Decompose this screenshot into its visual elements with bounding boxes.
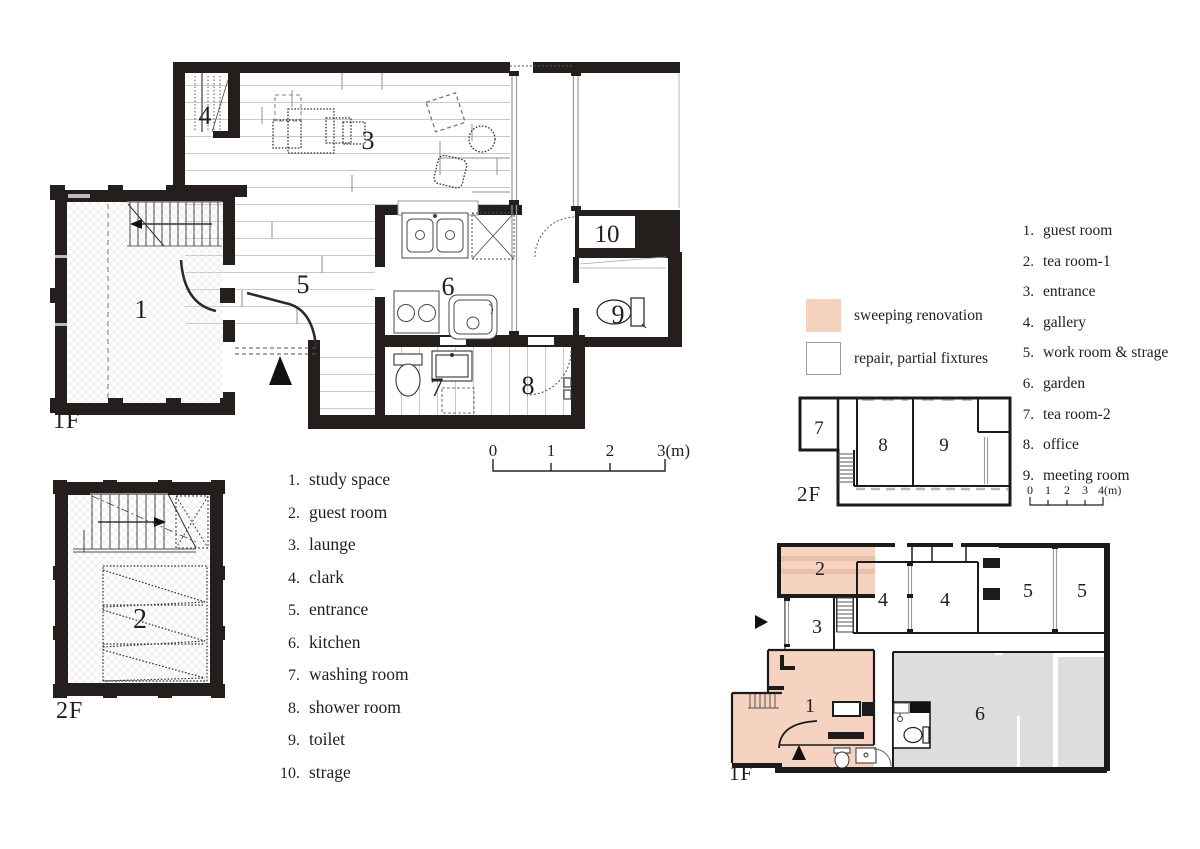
left-room-legend: 1.study space 2.guest room 3.launge 4.cl… [272,469,409,794]
legend-item: 7.washing room [272,664,409,685]
room-label-guestroom-r: 1 [805,695,815,717]
room-label-launge: 3 [362,126,375,155]
room-label-meeting: 9 [939,435,949,456]
floor-plan-left-2f: 2 [48,478,238,713]
legend-item: 5.entrance [272,599,409,620]
room-label-kitchen: 6 [442,272,455,301]
scale-tick-label: 0 [489,441,498,460]
legend-item-number: 6. [1012,376,1034,393]
scale-bar-right: 0 1 2 3 4(m) [1022,482,1142,512]
entrance-arrow-marker [269,356,292,385]
legend-item-number: 10. [272,765,300,783]
legend-item-number: 4. [272,570,300,588]
key-row-repair: repair, partial fixtures [806,342,988,375]
scale-tick-label: 2 [1064,483,1070,497]
legend-item-number: 6. [272,635,300,653]
legend-item-number: 1. [272,472,300,490]
legend-item-number: 5. [1012,345,1034,362]
legend-item-label: shower room [309,697,401,718]
legend-item: 7.tea room-2 [1012,406,1168,424]
legend-item-label: toilet [309,729,345,750]
legend-item-label: tea room-2 [1043,406,1111,424]
side-entrance-marker [755,615,768,629]
legend-item-label: washing room [309,664,409,685]
legend-item-label: office [1043,436,1079,454]
room-label-tearoom1: 2 [815,558,825,580]
legend-item-label: guest room [1043,222,1112,240]
legend-item: 5.work room & strage [1012,344,1168,362]
legend-item-label: work room & strage [1043,344,1168,362]
key-row-sweeping: sweeping renovation [806,299,988,332]
room-label-toilet: 9 [612,300,625,329]
right-2f-floor-label: 2F [797,482,821,507]
sweeping-swatch-rect [806,299,841,332]
legend-item: 6.garden [1012,375,1168,393]
legend-item: 1.study space [272,469,409,490]
room-label-clark: 4 [199,101,212,130]
key-label-sweeping: sweeping renovation [854,307,983,325]
legend-item-label: launge [309,534,356,555]
room-label-office: 8 [878,435,888,456]
scale-tick-label: 3(m) [657,441,690,460]
legend-item: 8.shower room [272,697,409,718]
legend-item-label: clark [309,567,344,588]
legend-item-label: kitchen [309,632,361,653]
left-2f-floor-label: 2F [56,698,83,725]
left-1f-floor-label: 1F [53,408,80,435]
legend-item-number: 2. [1012,254,1034,271]
garden-east-fill [1058,657,1104,767]
room-label-study: 1 [135,295,148,324]
scale-tick-label: 0 [1027,483,1033,497]
right-room-legend: 1.guest room 2.tea room-1 3.entrance 4.g… [1012,222,1168,497]
room-label-strage: 10 [595,221,620,248]
room-label-workroom-b: 5 [1077,580,1087,602]
sweeping-renovation-swatch [806,299,841,332]
scale-bar-line [493,459,665,471]
legend-item: 4.clark [272,567,409,588]
legend-item: 2.tea room-1 [1012,253,1168,271]
room-label-gallery-b: 4 [940,589,950,611]
room-label-shower: 8 [522,371,535,400]
tearoom1-stripe [780,556,875,561]
legend-item-label: entrance [309,599,368,620]
legend-item: 1.guest room [1012,222,1168,240]
legend-item: 4.gallery [1012,314,1168,332]
legend-item-number: 1. [1012,223,1034,240]
floor-plan-right-1f: 2 3 4 4 5 5 1 6 [722,536,1137,786]
key-label-repair: repair, partial fixtures [854,350,988,368]
repair-swatch-rect [807,343,841,375]
garden-bathroom [893,702,930,748]
legend-item: 3.launge [272,534,409,555]
legend-item: 3.entrance [1012,283,1168,301]
corridor-door-arc [535,217,575,257]
legend-item-number: 8. [272,700,300,718]
scale-bar-line [1030,497,1103,505]
legend-item-label: strage [309,762,351,783]
legend-item-number: 9. [272,732,300,750]
guestroom-floor [68,495,210,683]
room-label-washing: 7 [431,373,444,402]
legend-item: 8.office [1012,436,1168,454]
legend-item-number: 7. [272,667,300,685]
legend-item-label: entrance [1043,283,1096,301]
legend-item-number: 3. [272,537,300,555]
room-label-workroom-a: 5 [1023,580,1033,602]
room-label-tearoom2: 7 [814,418,824,439]
legend-item-label: gallery [1043,314,1086,332]
scale-tick-label: 1 [547,441,556,460]
floorplan-sheet: { "colors": { "sweeping_renovation": "#f… [0,0,1200,849]
legend-item: 6.kitchen [272,632,409,653]
scale-tick-label: 2 [606,441,615,460]
legend-item-label: guest room [309,502,387,523]
repair-swatch [806,342,841,375]
scale-tick-label: 3 [1082,483,1088,497]
room-label-gallery-a: 4 [878,589,888,611]
floor-plan-left-1f: 4 3 5 6 10 9 7 8 1 [42,52,692,447]
legend-item-number: 4. [1012,315,1034,332]
legend-item-label: tea room-1 [1043,253,1111,271]
tearoom1-stripe [780,569,875,574]
renovation-color-key: sweeping renovation repair, partial fixt… [806,299,988,385]
legend-item-label: study space [309,469,390,490]
legend-item: 2.guest room [272,502,409,523]
legend-item-number: 3. [1012,284,1034,301]
legend-item: 9.toilet [272,729,409,750]
legend-item-label: garden [1043,375,1085,393]
floor-plan-right-2f: 7 8 9 [792,392,1020,514]
room-label-garden: 6 [975,703,985,725]
right-1f-floor-label: 1F [729,761,753,786]
scale-tick-label: 4(m) [1098,483,1121,497]
legend-item-number: 5. [272,602,300,620]
scale-bar-left: 0 1 2 3(m) [485,440,695,482]
room-label-entrance: 5 [297,270,310,299]
legend-item: 10.strage [272,762,409,783]
scale-tick-label: 1 [1045,483,1051,497]
legend-item-number: 2. [272,505,300,523]
corridor-windows [509,66,679,336]
room-label-entrance-r: 3 [812,616,822,638]
room-label-guestroom: 2 [133,604,147,635]
